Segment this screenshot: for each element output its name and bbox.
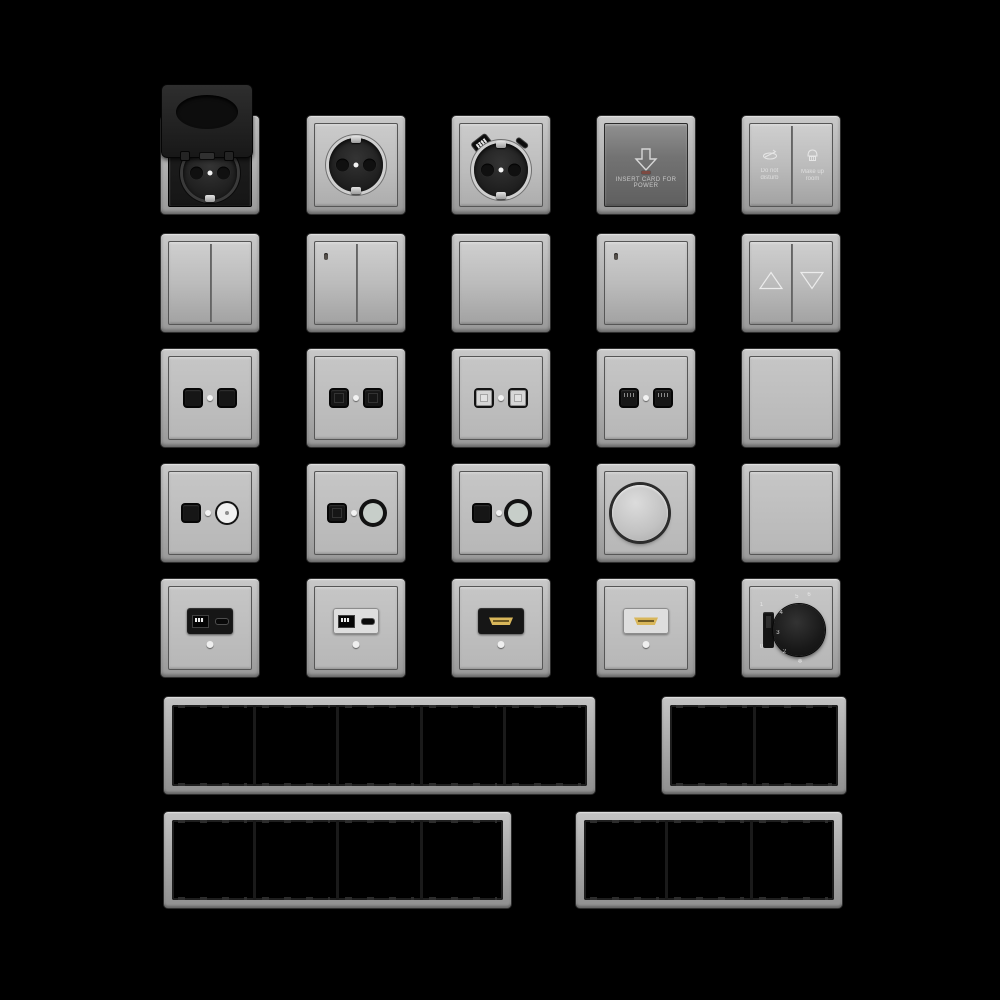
switch-1gang[interactable] — [451, 233, 551, 333]
hdmi-insert — [478, 608, 524, 634]
schuko-recess — [474, 143, 528, 197]
usb-insert — [333, 608, 379, 634]
switch-2gang[interactable] — [160, 233, 260, 333]
frame-opening — [423, 820, 504, 900]
blank-plate[interactable] — [741, 463, 841, 563]
usb-outlet-black[interactable] — [160, 578, 260, 678]
usb-c-port[interactable] — [516, 138, 528, 149]
card-led-indicator — [642, 171, 651, 174]
shuttered-jack[interactable] — [510, 390, 526, 406]
data-jack[interactable] — [365, 390, 381, 406]
coax-connector[interactable] — [508, 503, 528, 523]
frost-icon: ❄ — [798, 658, 803, 665]
usb-a-port[interactable] — [338, 615, 355, 628]
center-dot — [351, 510, 357, 516]
key-card-label: INSERT CARD FOR POWER — [605, 177, 687, 189]
rotary-dimmer[interactable] — [596, 463, 696, 563]
screw-dot — [207, 641, 214, 648]
switch-indicator-led — [614, 253, 618, 260]
usb-outlet-light[interactable] — [306, 578, 406, 678]
blind-switch[interactable] — [741, 233, 841, 333]
data-jack[interactable] — [183, 505, 199, 521]
rj45-jack[interactable] — [621, 390, 637, 406]
frame-3-gang[interactable] — [575, 811, 843, 909]
frame-opening — [172, 705, 256, 786]
center-dot — [496, 510, 502, 516]
frame-opening — [339, 820, 423, 900]
socket-flip-cover[interactable] — [160, 115, 260, 215]
data-outlet-2port-rj45[interactable] — [596, 348, 696, 448]
screw-dot — [498, 641, 505, 648]
slider-off-label: 0 — [760, 644, 763, 650]
service-indicator-panel[interactable]: Do not disturb Make up room — [741, 115, 841, 215]
blind-down-icon[interactable] — [799, 270, 825, 297]
key-card-switch[interactable]: INSERT CARD FOR POWER — [596, 115, 696, 215]
data-outlet-2port-shuttered[interactable] — [451, 348, 551, 448]
socket-schuko-usb[interactable] — [451, 115, 551, 215]
slider-on-label: 1 — [760, 602, 763, 608]
center-dot — [207, 395, 213, 401]
hdmi-port[interactable] — [489, 617, 513, 625]
center-dot — [205, 510, 211, 516]
frame-opening — [172, 820, 256, 900]
switch-1gang-flat[interactable] — [741, 348, 841, 448]
center-dot — [643, 395, 649, 401]
usb-c-port[interactable] — [361, 618, 375, 625]
make-up-room-icon — [805, 148, 820, 167]
screw-dot — [643, 641, 650, 648]
usb-a-port[interactable] — [192, 615, 209, 628]
frame-opening — [670, 705, 756, 786]
hdmi-port[interactable] — [634, 617, 658, 625]
frame-opening — [668, 820, 752, 900]
data-outlet-2port-a[interactable] — [160, 348, 260, 448]
usb-c-port[interactable] — [215, 618, 229, 625]
hdmi-outlet-light[interactable] — [596, 578, 696, 678]
coax-connector[interactable] — [363, 503, 383, 523]
data-jack[interactable] — [331, 390, 347, 406]
shuttered-jack[interactable] — [476, 390, 492, 406]
frame-opening — [584, 820, 668, 900]
switch-2gang-led[interactable] — [306, 233, 406, 333]
schuko-recess — [329, 138, 383, 192]
frame-opening — [753, 820, 834, 900]
data-jack[interactable] — [219, 390, 235, 406]
coax-connector[interactable] — [217, 503, 237, 523]
flip-cover-lid[interactable] — [161, 84, 253, 158]
tv-data-outlet-a[interactable] — [160, 463, 260, 563]
switch-1gang-led[interactable] — [596, 233, 696, 333]
frame-4-gang[interactable] — [163, 811, 512, 909]
rj45-jack[interactable] — [655, 390, 671, 406]
dimmer-knob[interactable] — [612, 485, 668, 541]
tv-data-outlet-b[interactable] — [306, 463, 406, 563]
thermostat[interactable]: 1 0 6 5 4 3 2 ❄ — [741, 578, 841, 678]
data-jack[interactable] — [185, 390, 201, 406]
screw-dot — [353, 641, 360, 648]
frame-opening — [423, 705, 507, 786]
data-jack[interactable] — [474, 505, 490, 521]
hdmi-insert — [623, 608, 669, 634]
data-outlet-2port-b[interactable] — [306, 348, 406, 448]
usb-insert — [187, 608, 233, 634]
frame-opening — [339, 705, 423, 786]
data-jack[interactable] — [329, 505, 345, 521]
tv-data-outlet-c[interactable] — [451, 463, 551, 563]
frame-opening — [256, 705, 340, 786]
frame-opening — [756, 705, 839, 786]
make-up-room-button[interactable]: Make up room — [793, 126, 832, 204]
frame-5-gang[interactable] — [163, 696, 596, 795]
socket-schuko[interactable] — [306, 115, 406, 215]
center-dot — [353, 395, 359, 401]
frame-opening — [506, 705, 587, 786]
hdmi-outlet-black[interactable] — [451, 578, 551, 678]
frame-opening — [256, 820, 340, 900]
blind-up-icon[interactable] — [758, 270, 784, 297]
do-not-disturb-icon — [761, 148, 779, 166]
do-not-disturb-button[interactable]: Do not disturb — [750, 126, 789, 204]
center-dot — [498, 395, 504, 401]
frame-2-gang[interactable] — [661, 696, 847, 795]
switch-indicator-led — [324, 253, 328, 260]
product-sheet: INSERT CARD FOR POWER Do not disturb — [0, 0, 1000, 1000]
